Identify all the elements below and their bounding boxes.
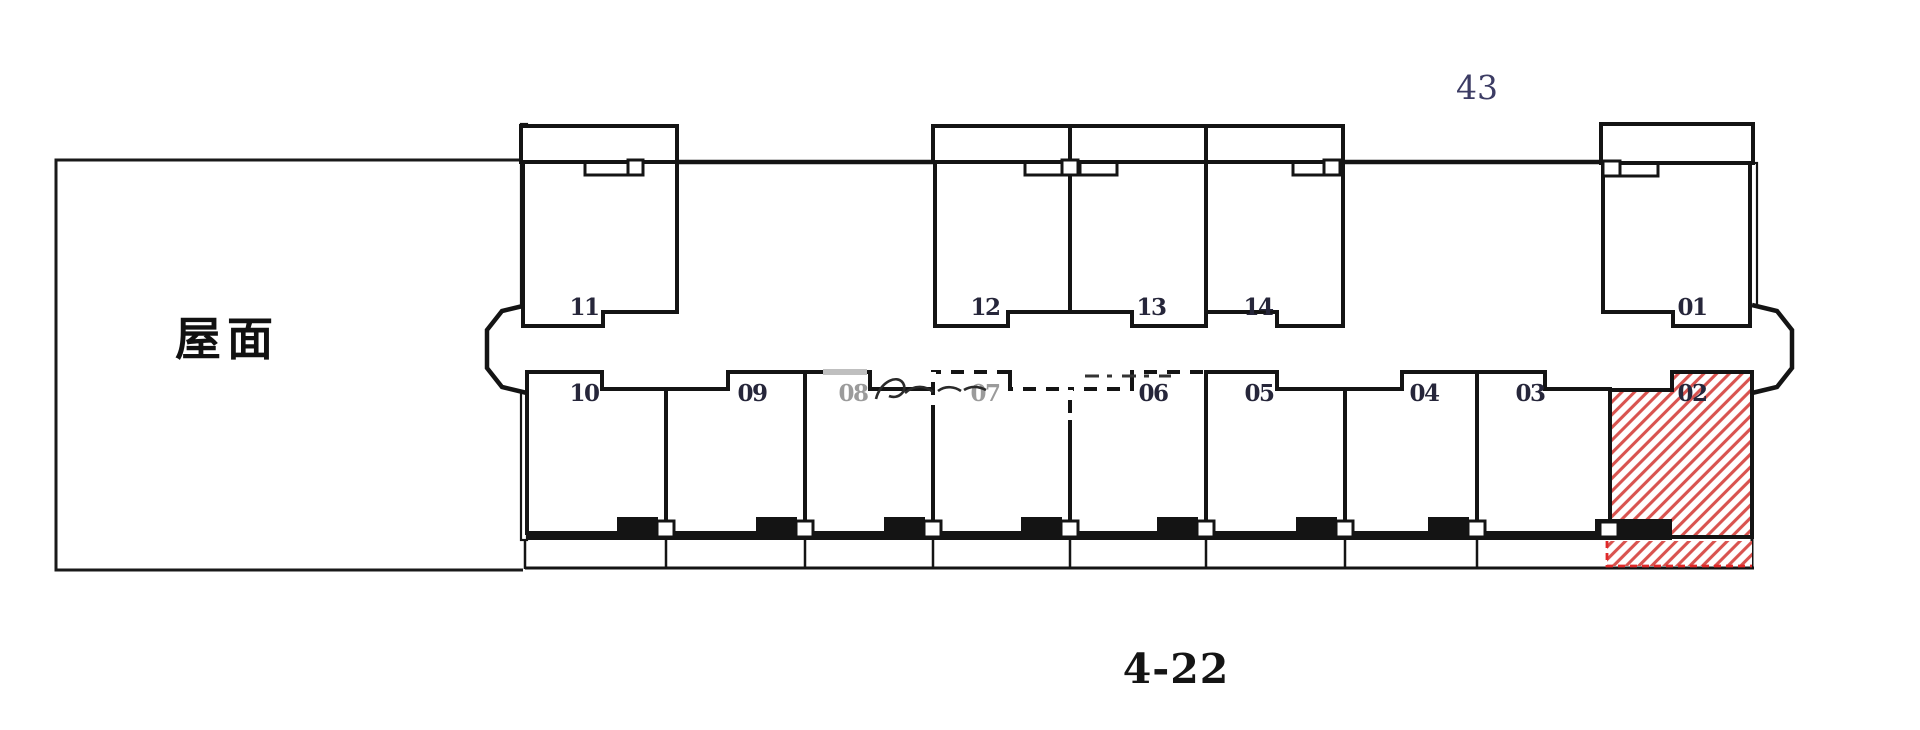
unit-05[interactable]: 05 (1206, 372, 1345, 533)
unit-14-window-square (1324, 160, 1340, 175)
floor-caption: 4-22 (1123, 645, 1230, 693)
unit-12[interactable]: 12 (933, 126, 1070, 326)
unit-11-window-square (628, 160, 643, 175)
unit-03[interactable]: 03 (1477, 372, 1610, 533)
unit-02-label: 02 (1677, 380, 1706, 407)
unit-11-bay (521, 126, 677, 162)
unit-14-label: 14 (1243, 294, 1274, 321)
unit-08-label: 08 (838, 380, 868, 407)
unit-14[interactable]: 14 (1206, 126, 1343, 326)
corridor-right-cap (1752, 305, 1792, 393)
roof-outline (56, 160, 523, 570)
unit-12-body (935, 162, 1070, 326)
unit-01-window-square (1603, 161, 1620, 176)
unit-05-body (1206, 372, 1345, 533)
unit-12-13-shared-square (1062, 160, 1078, 175)
strip-lines (525, 537, 1754, 569)
unit-08[interactable]: 08 (805, 372, 933, 533)
unit-01-label: 01 (1677, 294, 1706, 321)
unit-02-divider-square (1600, 522, 1618, 537)
unit-14-body (1206, 162, 1343, 326)
unit-06-label: 06 (1138, 380, 1168, 407)
unit-05-label: 05 (1244, 380, 1274, 407)
unit-01[interactable]: 01 (1601, 124, 1753, 326)
highlighted-unit-02[interactable]: 02 (1595, 372, 1752, 566)
unit-11[interactable]: 11 (521, 126, 677, 326)
plan-number: 43 (1456, 68, 1498, 107)
unit-09-label: 09 (737, 380, 767, 407)
unit-14-bay (1206, 126, 1343, 162)
unit-11-body (523, 162, 677, 326)
unit-11-label: 11 (569, 294, 598, 321)
unit-12-bay (933, 126, 1070, 162)
top-row: 11 12 13 14 01 (521, 124, 1753, 326)
unit-13[interactable]: 13 (1062, 126, 1206, 326)
floor-plan: 屋面 11 12 (0, 0, 1920, 730)
unit-13-label: 13 (1136, 294, 1166, 321)
unit-10-label: 10 (569, 380, 599, 407)
unit-07-label: 07 (970, 380, 1000, 407)
unit-12-label: 12 (970, 294, 999, 321)
unit-09-body (666, 372, 805, 533)
unit-08-body (805, 372, 933, 533)
unit-09[interactable]: 09 (666, 372, 805, 533)
unit-03-label: 03 (1515, 380, 1545, 407)
unit-13-bay (1070, 126, 1206, 162)
roof-area: 屋面 (56, 160, 523, 570)
unit-06[interactable]: 06 (1070, 372, 1206, 533)
unit-04[interactable]: 04 (1345, 372, 1477, 533)
roof-label: 屋面 (175, 312, 279, 366)
unit-07[interactable]: 07 (933, 372, 1070, 533)
unit-07-body (933, 372, 1070, 533)
unit-10[interactable]: 10 (527, 372, 666, 533)
watermark-gray-bar (823, 369, 867, 375)
floor-plan-page: 屋面 11 12 (0, 0, 1920, 730)
unit-01-bay (1601, 124, 1753, 163)
unit-02-balcony-hatched (1607, 541, 1752, 566)
unit-04-label: 04 (1409, 380, 1440, 407)
